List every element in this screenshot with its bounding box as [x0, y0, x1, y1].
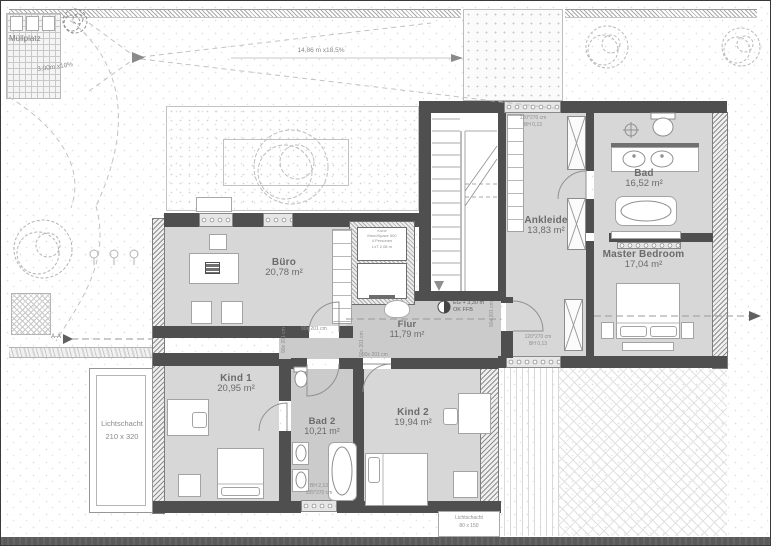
muellplatz-label: Müllplatz — [9, 35, 69, 44]
bad2-label: Bad 2 10,21 m² — [272, 417, 372, 437]
bad-toilet-icon — [651, 113, 675, 136]
driveway-dimension-label: 14,86 m x18,5% — [271, 47, 371, 54]
lichtschacht-west-title: Lichtschacht — [91, 420, 153, 428]
bad-tub-inner — [621, 201, 671, 221]
south-boundary-band — [1, 537, 771, 546]
linework-overlay — [1, 1, 771, 546]
bad2-toilet-icon — [294, 367, 307, 387]
window-basement-line1: BH 2,13 — [297, 483, 341, 489]
lichtschacht-west-size: 210 x 320 — [91, 433, 153, 441]
master-bedroom-label: Master Bedroom 17,04 m² — [586, 249, 701, 270]
section-marker-label: A-A — [45, 334, 61, 341]
door-size-kind2: 90x 201 cm — [362, 352, 402, 358]
flur-label: Flur 11,79 m² — [357, 320, 457, 340]
level-marker-icon — [438, 301, 450, 313]
dimension-arrow-icon — [451, 54, 463, 62]
door-size-buero: 90x 201 cm — [301, 326, 341, 332]
door-arc-kind2 — [363, 364, 391, 392]
tree-icon — [14, 220, 72, 278]
door-size-kind1: 90x 201 cm — [281, 317, 287, 353]
tree-icon — [63, 9, 87, 33]
bad2-basin-1 — [296, 445, 306, 461]
lichtschacht-south-size: 80 x 150 — [438, 523, 500, 529]
tree-icon — [586, 26, 628, 68]
door-arc-ankleide-bad — [558, 171, 586, 199]
section-arrow-icon — [63, 334, 73, 344]
door-arc-flur-ankleide — [513, 301, 543, 331]
buero-label: Büro 20,78 m² — [234, 257, 334, 278]
shrub-icon — [90, 250, 138, 265]
staircase — [432, 119, 497, 291]
door-size-flur: 90x 201 cm — [489, 291, 495, 327]
bad-label: Bad 16,52 m² — [594, 168, 694, 189]
kind2-label: Kind 2 19,94 m² — [363, 407, 463, 428]
window-north-line1: 120*270 cm — [506, 115, 560, 121]
window-basement-line2: 135*270 cm — [297, 490, 341, 496]
door-swings — [259, 171, 586, 431]
window-south-line1: 120*270 cm — [513, 334, 563, 340]
kind1-label: Kind 1 20,95 m² — [186, 373, 286, 394]
window-south-line2: BH 0,13 — [513, 341, 563, 347]
bad-basins — [623, 151, 673, 167]
window-north-line2: BH 0,13 — [506, 122, 560, 128]
tree-icon — [254, 130, 328, 204]
tree-icon — [722, 28, 760, 66]
floor-plan-canvas: Kone MonoSpace 500 4 Personen LxT 2,08 m — [0, 0, 771, 546]
stair-direction-arrow-icon — [434, 281, 444, 291]
section-arrow-icon — [749, 311, 761, 321]
door-size-elevator-side: 90x 201 cm — [359, 321, 365, 357]
ankleide-label: Ankleide 13,83 m² — [506, 215, 586, 236]
shower-head-icon — [623, 122, 639, 138]
door-arc-bad2 — [307, 364, 339, 396]
dimension-arrow-icon — [132, 52, 145, 63]
lichtschacht-south-title: Lichtschacht — [438, 515, 500, 521]
